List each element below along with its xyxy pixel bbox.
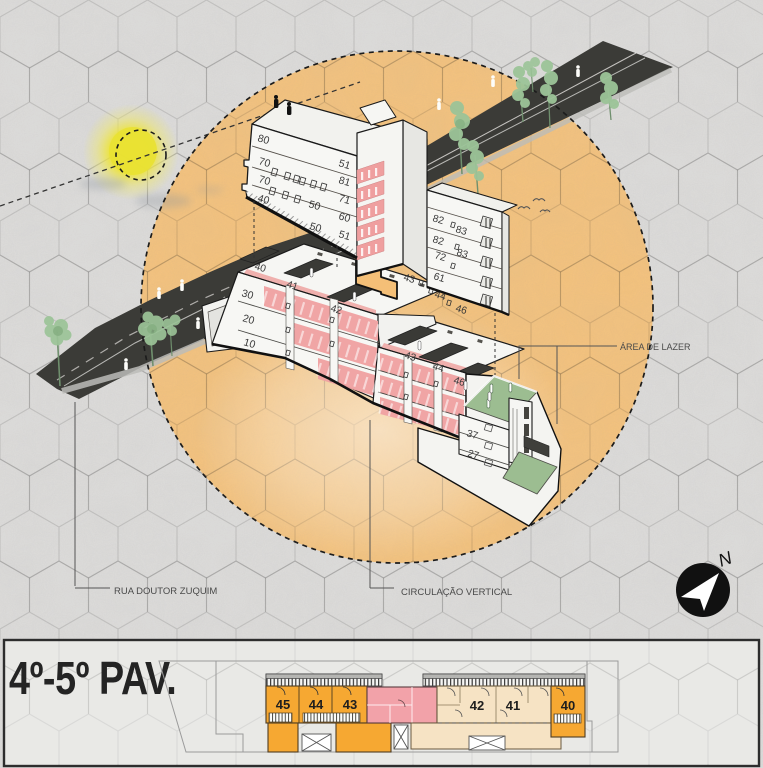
svg-text:41: 41	[506, 698, 520, 713]
svg-text:42: 42	[470, 698, 484, 713]
svg-text:44: 44	[309, 697, 324, 712]
svg-text:CIRCULAÇÃO VERTICAL: CIRCULAÇÃO VERTICAL	[401, 587, 512, 598]
svg-text:4º-5º PAV.: 4º-5º PAV.	[9, 652, 176, 703]
svg-text:ÁREA DE LAZER: ÁREA DE LAZER	[620, 342, 691, 352]
svg-text:43: 43	[343, 697, 357, 712]
svg-text:RUA DOUTOR ZUQUIM: RUA DOUTOR ZUQUIM	[114, 586, 217, 597]
svg-text:45: 45	[276, 697, 290, 712]
svg-text:40: 40	[561, 698, 575, 713]
